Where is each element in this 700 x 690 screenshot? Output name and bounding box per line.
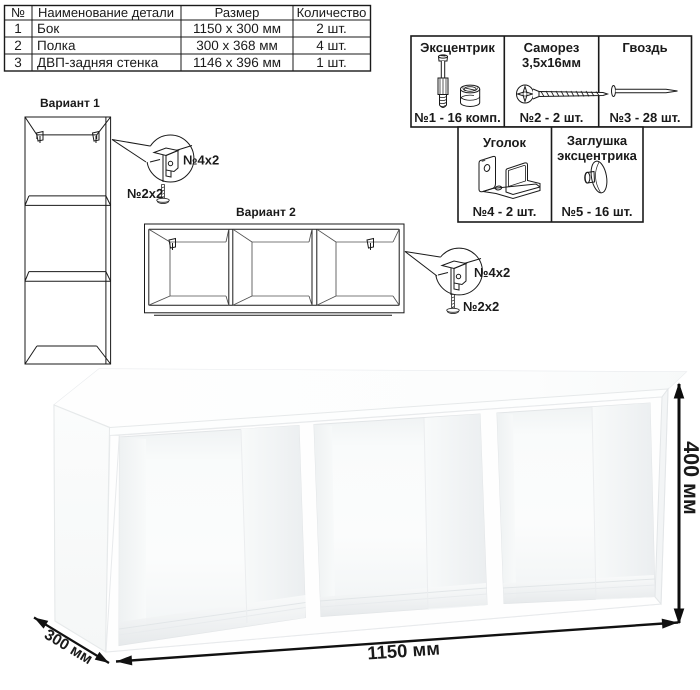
svg-text:№2х2: №2х2 <box>127 186 163 201</box>
svg-text:№2х2: №2х2 <box>463 299 499 314</box>
svg-text:4 шт.: 4 шт. <box>316 38 347 53</box>
svg-text:1 шт.: 1 шт. <box>316 55 347 70</box>
svg-text:№1 - 16 комп.: №1 - 16 комп. <box>414 110 501 125</box>
svg-text:300 x 368 мм: 300 x 368 мм <box>196 38 278 53</box>
svg-text:400 мм: 400 мм <box>679 441 700 515</box>
svg-text:3: 3 <box>14 55 22 70</box>
svg-text:Наименование детали: Наименование детали <box>38 5 174 20</box>
svg-text:№2 - 2 шт.: №2 - 2 шт. <box>520 110 584 125</box>
svg-text:№4х2: №4х2 <box>183 153 219 168</box>
svg-text:2 шт.: 2 шт. <box>316 21 347 36</box>
svg-text:ДВП-задняя стенка: ДВП-задняя стенка <box>37 55 159 70</box>
svg-text:Вариант 2: Вариант 2 <box>236 205 296 219</box>
svg-text:№: № <box>11 5 25 20</box>
svg-text:Полка: Полка <box>37 38 76 53</box>
svg-text:Размер: Размер <box>215 5 260 20</box>
svg-text:3,5х16мм: 3,5х16мм <box>522 55 581 70</box>
svg-text:Заглушка: Заглушка <box>567 133 628 148</box>
svg-text:№3 - 28 шт.: №3 - 28 шт. <box>609 110 680 125</box>
svg-text:1150 x 300 мм: 1150 x 300 мм <box>193 21 281 36</box>
svg-text:Бок: Бок <box>37 21 59 36</box>
svg-text:№5 - 16 шт.: №5 - 16 шт. <box>561 204 632 219</box>
svg-text:Эксцентрик: Эксцентрик <box>420 40 495 55</box>
svg-text:2: 2 <box>14 38 22 53</box>
svg-text:Количество: Количество <box>297 5 367 20</box>
svg-text:Уголок: Уголок <box>483 135 526 150</box>
svg-text:Вариант 1: Вариант 1 <box>40 96 100 110</box>
svg-text:Саморез: Саморез <box>524 40 580 55</box>
svg-text:1: 1 <box>14 21 22 36</box>
svg-text:Гвоздь: Гвоздь <box>622 40 667 55</box>
svg-text:№4 - 2 шт.: №4 - 2 шт. <box>473 204 537 219</box>
svg-text:№4х2: №4х2 <box>474 265 510 280</box>
svg-text:1146 x 396 мм: 1146 x 396 мм <box>193 55 281 70</box>
